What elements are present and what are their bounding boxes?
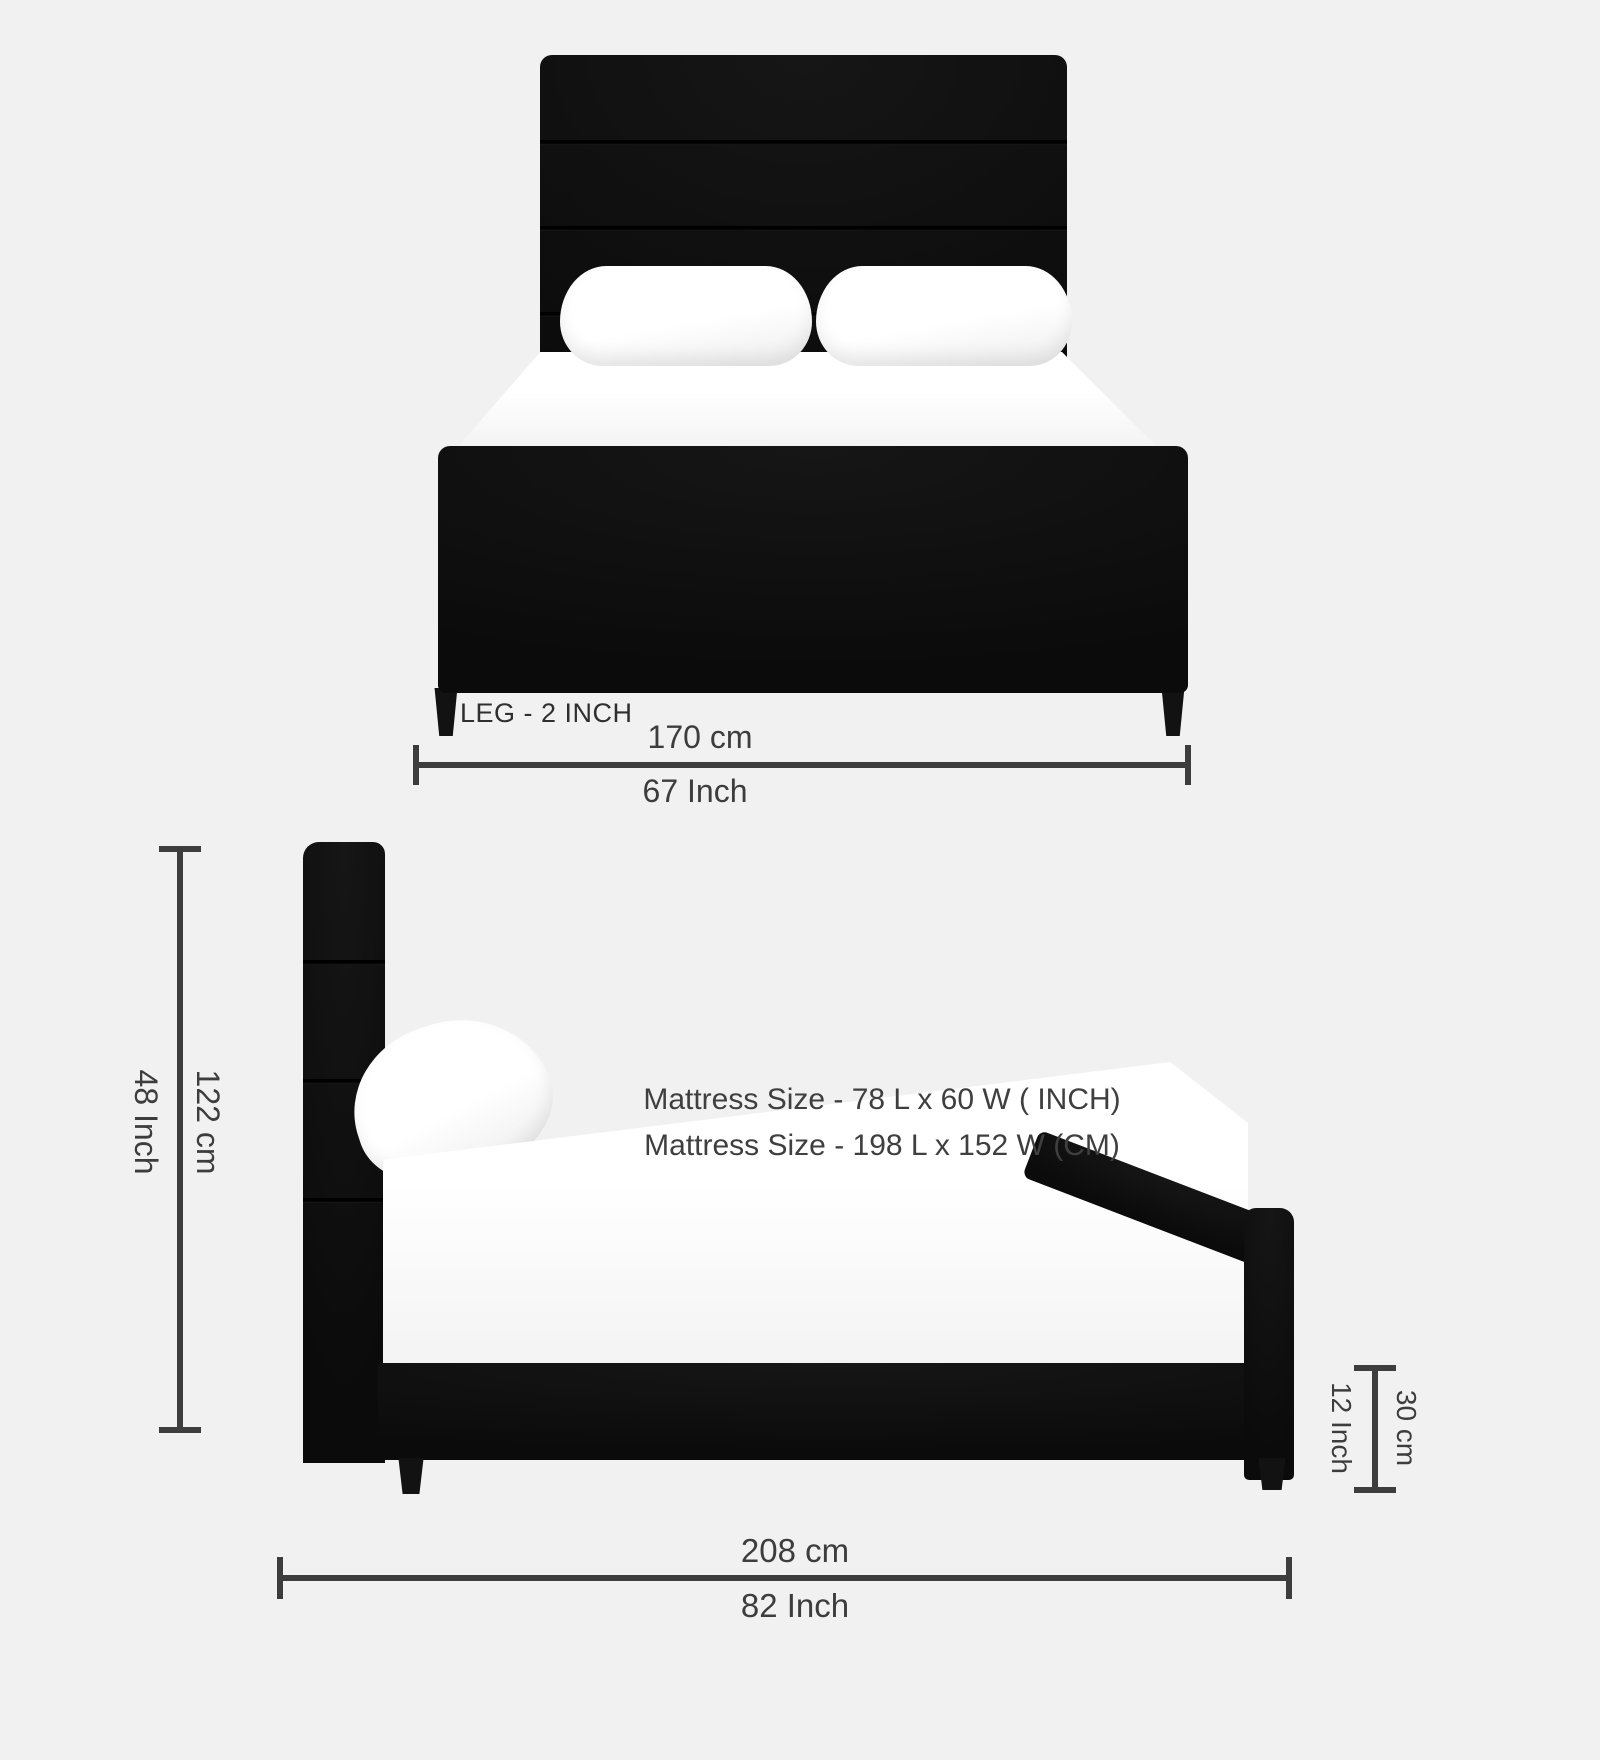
length-tick-right: [1286, 1557, 1292, 1599]
headboard-seam: [540, 140, 1067, 145]
side-view: 122 cm 48 Inch Mattress Size - 78 L x 60…: [0, 760, 1600, 1760]
side-leg-left: [396, 1458, 426, 1494]
length-inch-label: 82 Inch: [741, 1588, 849, 1624]
footboard-side-post: [1244, 1208, 1294, 1480]
mattress-size-inch-label: Mattress Size - 78 L x 60 W ( INCH): [643, 1082, 1120, 1118]
pillow-left: [560, 266, 812, 366]
height-inch-label: 48 Inch: [130, 1070, 162, 1175]
length-dimension-line: [280, 1575, 1289, 1581]
base-height-dimension-line: [1372, 1368, 1378, 1490]
height-tick-bottom: [159, 1427, 201, 1433]
front-leg-left: [433, 688, 459, 736]
front-view: LEG - 2 INCH 170 cm 67 Inch: [0, 0, 1600, 820]
bed-dimension-diagram: LEG - 2 INCH 170 cm 67 Inch 122 cm 48 In…: [0, 0, 1600, 1760]
front-width-cm-label: 170 cm: [648, 720, 753, 755]
base-height-cm-label: 30 cm: [1392, 1390, 1420, 1466]
length-tick-left: [277, 1557, 283, 1599]
side-leg-right: [1256, 1458, 1288, 1490]
height-dimension-line: [177, 849, 183, 1433]
bed-base-side: [378, 1363, 1294, 1460]
leg-size-label: LEG - 2 INCH: [460, 698, 633, 729]
base-height-tick-bottom: [1354, 1487, 1396, 1493]
height-cm-label: 122 cm: [192, 1070, 224, 1175]
base-height-inch-label: 12 Inch: [1327, 1382, 1355, 1474]
headboard-side-seam: [303, 1198, 385, 1203]
pillow-right: [816, 266, 1072, 366]
headboard-seam: [540, 226, 1067, 231]
headboard-side-seam: [303, 960, 385, 965]
footboard-front: [438, 446, 1188, 693]
mattress-size-cm-label: Mattress Size - 198 L x 152 W (CM): [644, 1128, 1120, 1164]
mattress-front: [455, 352, 1160, 450]
front-leg-right: [1160, 688, 1186, 736]
length-cm-label: 208 cm: [741, 1533, 849, 1569]
